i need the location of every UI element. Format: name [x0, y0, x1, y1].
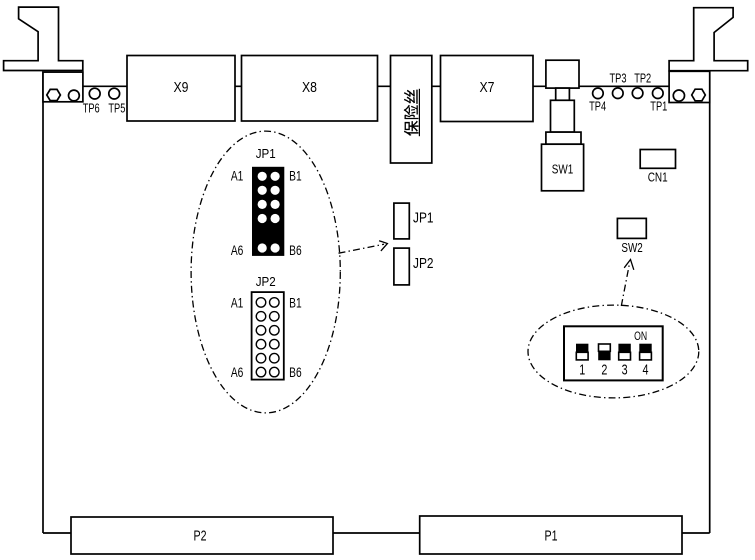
svg-text:P1: P1 — [545, 529, 558, 545]
svg-text:TP4: TP4 — [589, 98, 606, 113]
svg-text:A6: A6 — [231, 242, 244, 258]
svg-text:B6: B6 — [289, 242, 302, 258]
svg-text:3: 3 — [622, 363, 628, 379]
svg-text:4: 4 — [643, 363, 649, 379]
svg-text:CN1: CN1 — [648, 169, 668, 184]
svg-text:ON: ON — [634, 329, 647, 343]
svg-text:1: 1 — [579, 363, 585, 379]
svg-text:P2: P2 — [194, 529, 207, 545]
svg-text:JP2: JP2 — [413, 256, 434, 272]
svg-text:X9: X9 — [174, 79, 189, 96]
svg-text:B1: B1 — [289, 294, 302, 310]
svg-text:JP1: JP1 — [413, 211, 434, 227]
svg-text:A1: A1 — [231, 294, 244, 310]
svg-text:SW2: SW2 — [621, 240, 642, 255]
svg-text:JP2: JP2 — [256, 275, 276, 289]
svg-text:A1: A1 — [231, 168, 244, 184]
svg-text:A6: A6 — [231, 364, 244, 380]
svg-text:TP1: TP1 — [650, 98, 667, 113]
svg-text:X7: X7 — [480, 79, 495, 96]
svg-text:TP3: TP3 — [610, 70, 627, 85]
svg-text:X8: X8 — [302, 79, 317, 96]
svg-text:TP6: TP6 — [83, 101, 100, 116]
svg-text:SW1: SW1 — [552, 162, 574, 177]
svg-text:2: 2 — [601, 363, 607, 379]
svg-text:B1: B1 — [289, 168, 302, 184]
svg-text:B6: B6 — [289, 364, 302, 380]
svg-text:JP1: JP1 — [256, 147, 276, 161]
svg-text:TP2: TP2 — [634, 70, 651, 85]
svg-text:TP5: TP5 — [108, 101, 125, 116]
